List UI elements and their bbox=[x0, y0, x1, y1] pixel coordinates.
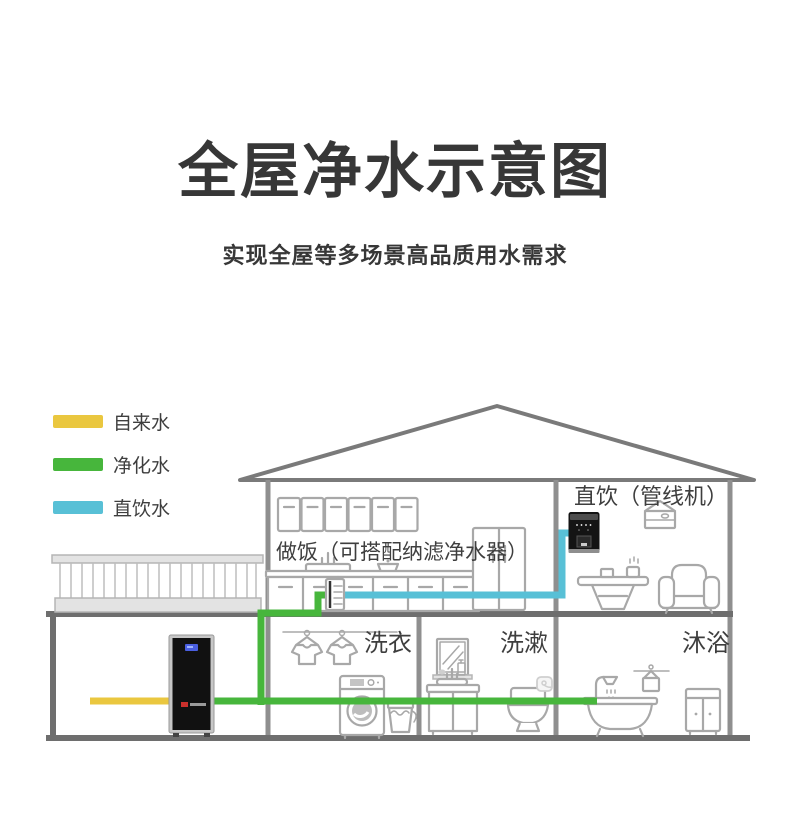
tea-table bbox=[578, 557, 648, 609]
balcony-railing bbox=[52, 555, 263, 612]
kitchen-room-label: 做饭（可搭配纳滤净水器） bbox=[276, 536, 528, 566]
under-sink-filter bbox=[326, 579, 344, 610]
legend-label: 净化水 bbox=[113, 451, 170, 478]
legend-label: 直饮水 bbox=[113, 494, 170, 521]
bucket bbox=[388, 702, 416, 732]
laundry-room-label: 洗衣 bbox=[364, 623, 412, 658]
bathing-room-label: 沐浴 bbox=[682, 623, 730, 658]
legend-label: 自来水 bbox=[113, 408, 170, 435]
page-title: 全屋净水示意图 bbox=[0, 139, 790, 205]
towel-hanger bbox=[634, 665, 669, 691]
shower-faucet bbox=[596, 677, 617, 700]
cup-icon bbox=[601, 569, 613, 577]
bathroom-cabinet bbox=[686, 689, 720, 734]
tap-water-swatch-icon bbox=[53, 415, 103, 428]
armchair bbox=[659, 565, 719, 613]
washing-room-label: 洗漱 bbox=[500, 623, 548, 658]
purifier-logo bbox=[181, 702, 188, 707]
page-subtitle: 实现全屋等多场景高品质用水需求 bbox=[0, 238, 790, 270]
kitchen-upper-cabinets bbox=[278, 498, 418, 531]
toilet bbox=[508, 688, 548, 731]
legend-item-direct-water: 直饮水 bbox=[53, 494, 170, 521]
direct-drinking-room-label: 直饮（管线机） bbox=[574, 479, 728, 511]
roof bbox=[240, 406, 754, 480]
toilet-paper bbox=[537, 677, 552, 691]
steaming-cup-icon bbox=[627, 567, 639, 577]
whole-house-purifier bbox=[169, 635, 214, 737]
legend-item-tap-water: 自来水 bbox=[53, 408, 170, 435]
poster: 全屋净水示意图 实现全屋等多场景高品质用水需求 自来水 净化水 直饮水 做饭（可… bbox=[0, 0, 790, 829]
purified-water-swatch-icon bbox=[53, 458, 103, 471]
washing-machine bbox=[340, 676, 384, 738]
pipeline-water-dispenser bbox=[569, 512, 600, 553]
legend-item-purified-water: 净化水 bbox=[53, 451, 170, 478]
direct-water-swatch-icon bbox=[53, 501, 103, 514]
